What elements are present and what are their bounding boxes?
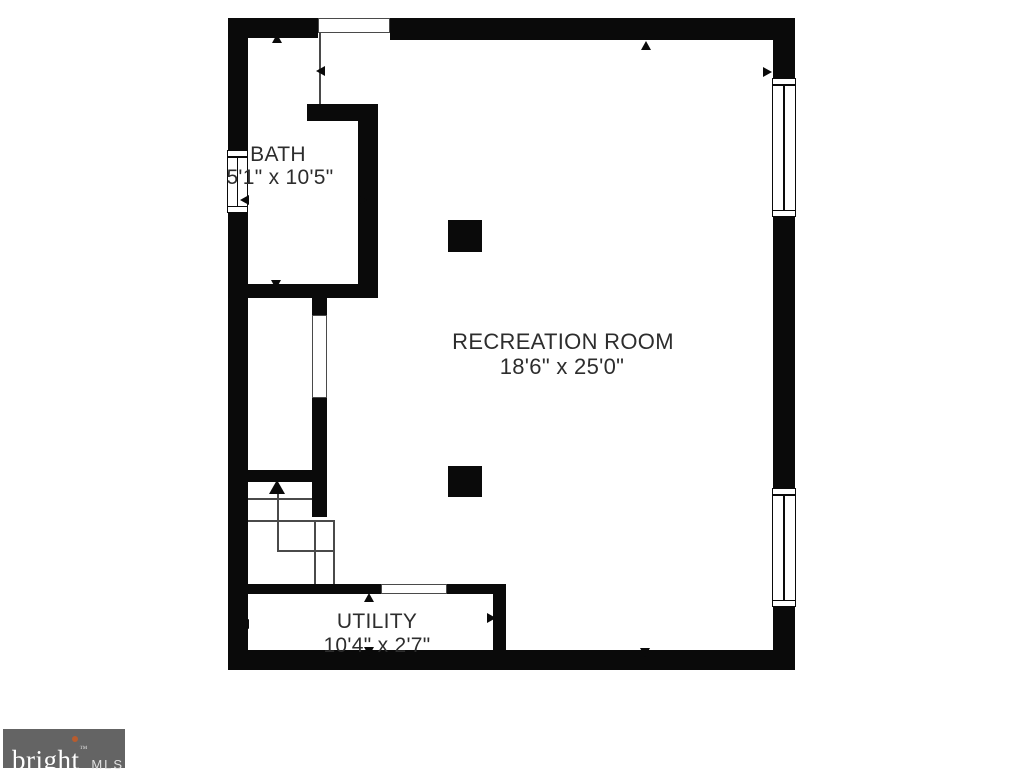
column-lower — [448, 466, 482, 497]
stair-tread-1 — [248, 498, 312, 500]
brightmls-mls-text: MLS — [91, 757, 124, 772]
utility-width-arrow-right — [487, 613, 496, 623]
utility-width-arrow-left — [240, 619, 249, 629]
bath-length-arrow-top — [272, 34, 282, 43]
bottom-wall — [228, 650, 795, 670]
bath-south-wall — [228, 284, 378, 298]
rec-window-lower — [772, 488, 796, 607]
stair-rail-left — [314, 520, 316, 584]
utility-north-wall-right — [447, 584, 506, 594]
right-wall-middle — [773, 217, 795, 488]
window-frame-midline — [783, 495, 785, 600]
stair-turn-line — [277, 550, 333, 552]
room-dimensions-utility: 10'4" x 2'7" — [323, 634, 430, 658]
hall-doorway — [312, 315, 327, 398]
entry-opening — [318, 18, 390, 33]
utility-height-arrow-top — [364, 593, 374, 602]
rec-width-arrow-right — [763, 67, 772, 77]
left-wall-lower — [228, 213, 248, 670]
stair-direction-line — [277, 492, 279, 550]
hall-east-wall — [312, 398, 327, 517]
utility-north-wall-left — [228, 584, 381, 594]
stair-tread-2 — [248, 520, 333, 522]
trademark-symbol: ™ — [80, 744, 88, 753]
bath-width-arrow-left — [240, 195, 249, 205]
stairs-up-arrow — [269, 480, 285, 494]
bath-width-arrow-right — [358, 195, 367, 205]
room-label-recreation-room: RECREATION ROOM — [452, 329, 674, 355]
room-dimensions-recreation-room: 18'6" x 25'0" — [500, 354, 625, 380]
utility-doorway — [381, 584, 447, 594]
room-dimensions-bath: 5'1" x 10'5" — [226, 166, 333, 190]
logo-flame-dot-icon — [72, 736, 78, 742]
bath-length-arrow-bottom — [271, 280, 281, 289]
floor-plan: BATH5'1" x 10'5"RECREATION ROOM18'6" x 2… — [0, 0, 1024, 768]
rec-length-arrow-top — [641, 41, 651, 50]
room-label-utility: UTILITY — [337, 610, 417, 634]
rec-length-arrow-bottom — [640, 648, 650, 657]
rec-window-upper — [772, 78, 796, 217]
brightmls-logo: bright™ MLS — [3, 729, 125, 768]
top-wall-right — [390, 18, 795, 40]
logo-bright-text: bright — [12, 745, 80, 775]
stair-rail-right — [333, 520, 335, 584]
window-frame-midline — [783, 85, 785, 210]
brightmls-wordmark: bright™ — [12, 729, 87, 780]
left-wall-upper — [228, 18, 248, 150]
rec-width-arrow-left — [316, 66, 325, 76]
room-label-bath: BATH — [250, 143, 306, 167]
hall-east-wall-stub — [312, 298, 327, 315]
column-upper — [448, 220, 482, 252]
right-wall-upper — [773, 18, 795, 78]
